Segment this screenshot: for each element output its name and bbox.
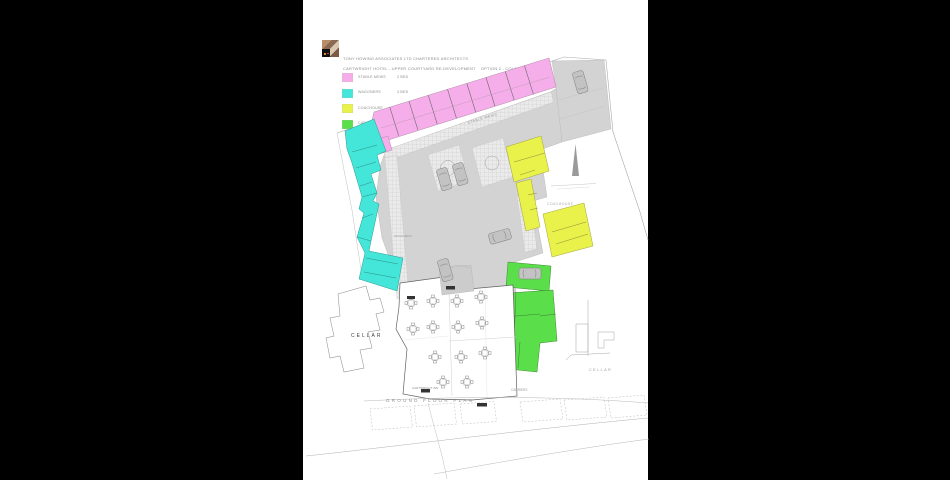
cellar-left-label: CELLAR [351, 333, 382, 339]
cartwright-inn-label: CARTWRIGHT INN [412, 386, 438, 390]
car-icon [519, 268, 541, 279]
cellar-outline-right [566, 300, 614, 360]
cellar-outline-left [326, 286, 384, 372]
carriers-unit-label: CARRIERS [511, 388, 527, 392]
wagoners-unit-label: WAGONERS [394, 234, 412, 238]
coachouse-unit-label: COACHOUSE [547, 202, 574, 206]
spire-monument [551, 144, 596, 189]
roads [306, 395, 649, 479]
cellar-right-label: CELLAR [589, 368, 612, 372]
drawing-viewer: TONY HOWING ASSOCIATES LTD CHARTERED ARC… [0, 0, 950, 480]
floor-plan-drawing: STABLE MEWS WAGONERS COACHOUSE CARRIERS … [0, 0, 950, 480]
ground-floor-plan-label: GROUND FLOOR PLAN [386, 398, 474, 403]
